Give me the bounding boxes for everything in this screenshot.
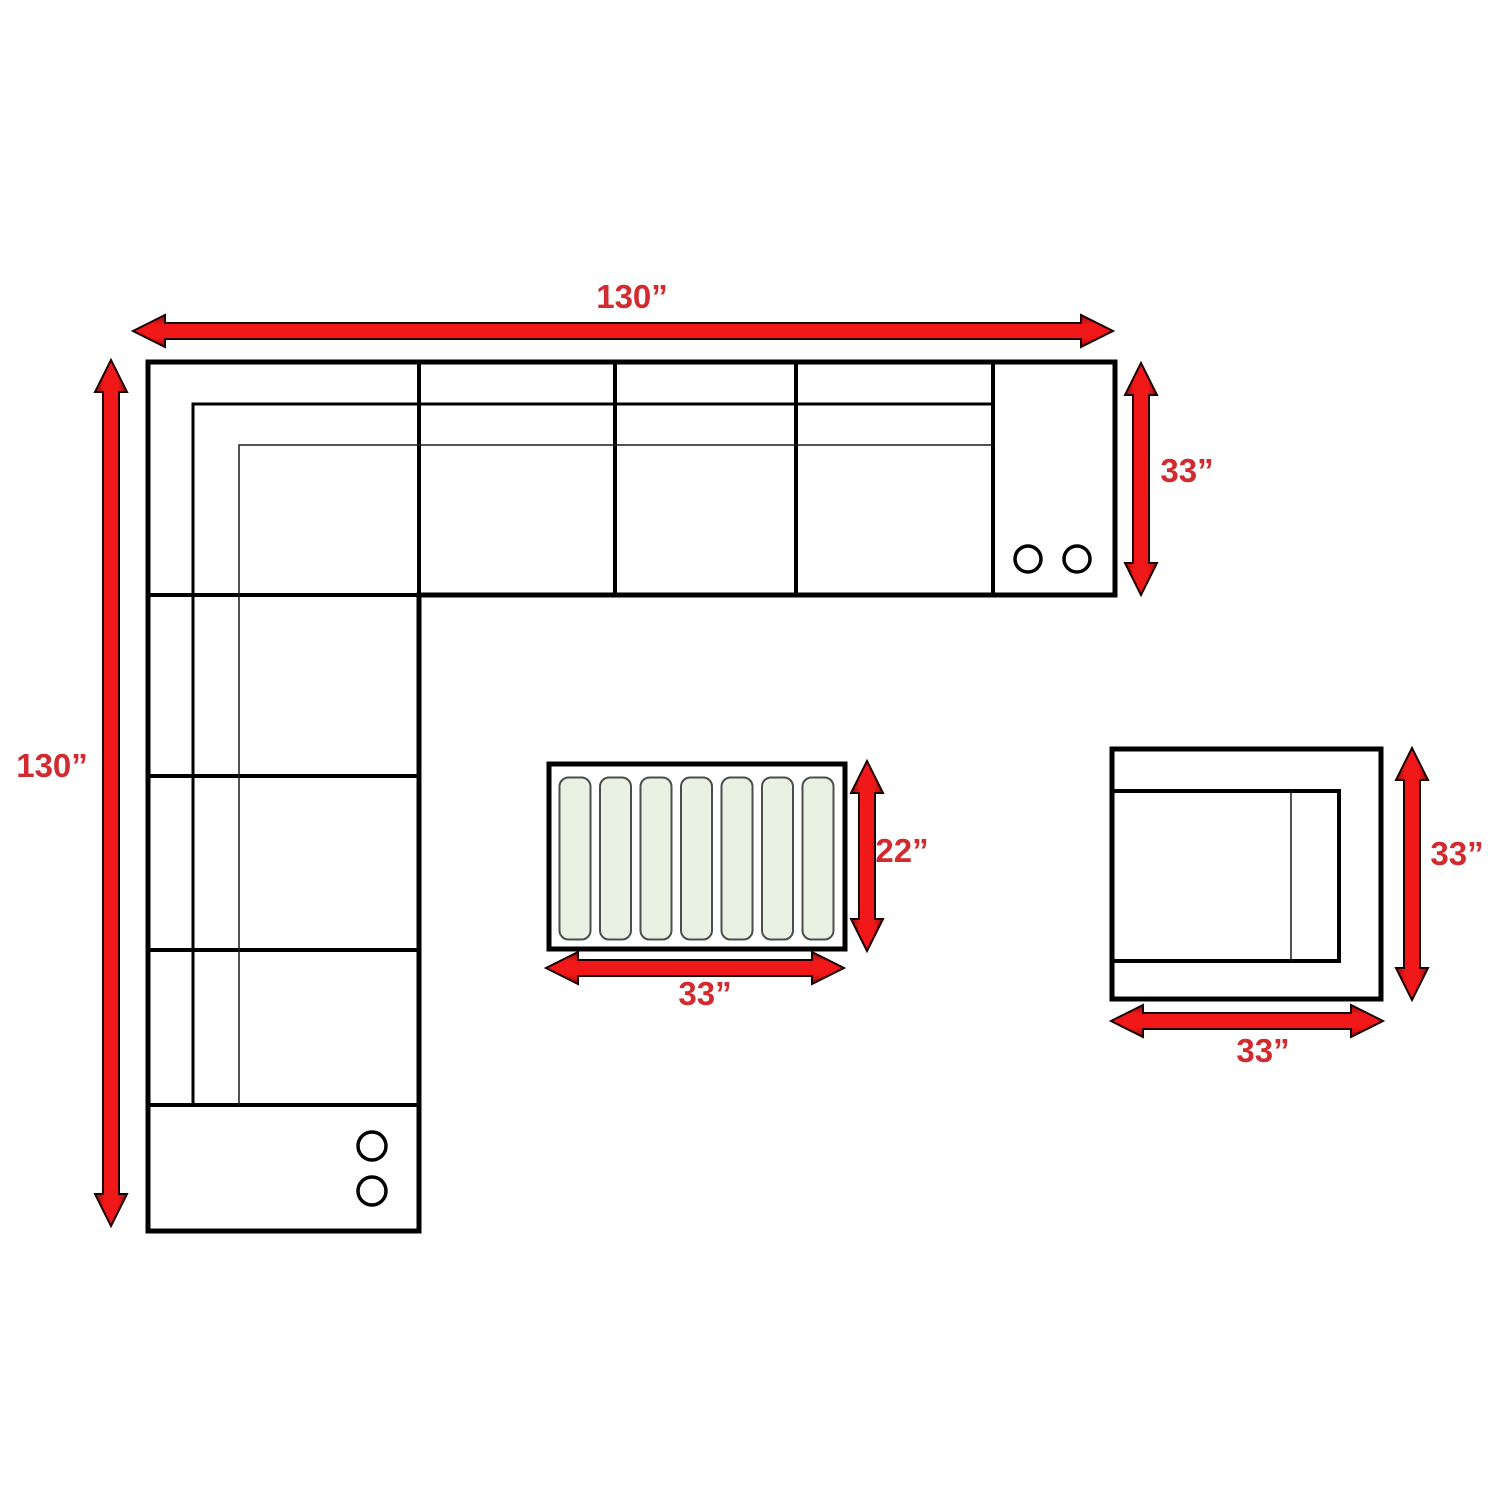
ottoman-slat <box>560 778 591 940</box>
sofa-height-arrow <box>95 360 127 1226</box>
chair-depth-arrow <box>1396 748 1428 1000</box>
cupholder-circle <box>358 1177 386 1205</box>
sofa-width-label: 130” <box>596 278 668 315</box>
armchair <box>1112 749 1381 999</box>
ottoman-slat <box>641 778 672 940</box>
sofa-depth-arrow <box>1125 363 1157 595</box>
ottoman-slat <box>803 778 834 940</box>
chair-depth-label: 33” <box>1430 835 1483 872</box>
ottoman-depth-label: 22” <box>875 832 928 869</box>
sofa-depth-label: 33” <box>1160 452 1213 489</box>
ottoman-slat <box>681 778 712 940</box>
ottoman-slats <box>560 778 834 940</box>
sofa-height-label: 130” <box>16 747 88 784</box>
floor-plan-canvas: 130” 130” 33” 22” 33” 33” 33” <box>0 0 1500 1500</box>
cupholder-circle <box>358 1132 386 1160</box>
cupholder-circle <box>1015 546 1041 572</box>
chair-width-label: 33” <box>1236 1032 1289 1069</box>
ottoman-width-label: 33” <box>678 975 731 1012</box>
ottoman-slat <box>722 778 753 940</box>
ottoman-slat <box>762 778 793 940</box>
ottoman-slat <box>600 778 631 940</box>
cupholder-circle <box>1064 546 1090 572</box>
ottoman-table <box>549 764 845 949</box>
sofa-width-arrow <box>133 315 1113 347</box>
furniture-dimension-diagram: 130” 130” 33” 22” 33” 33” 33” <box>0 0 1500 1500</box>
